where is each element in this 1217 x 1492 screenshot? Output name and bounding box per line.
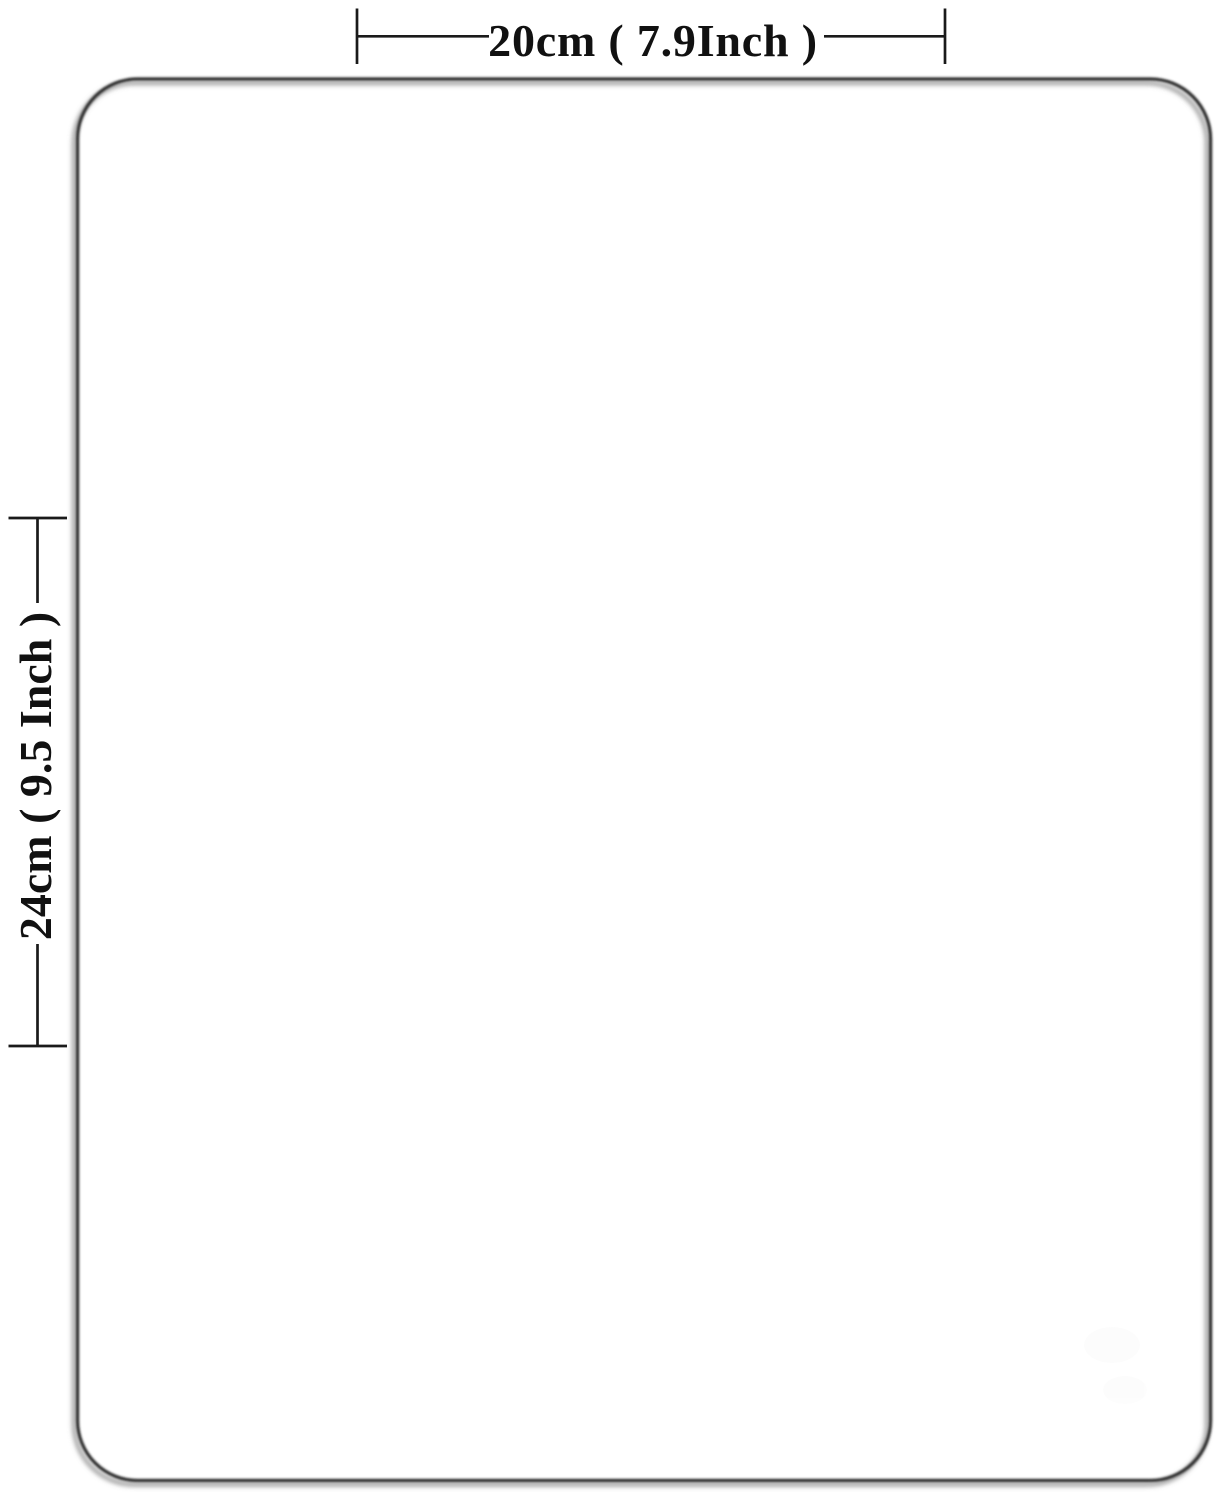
svg-text:24cm ( 9.5 Inch ): 24cm ( 9.5 Inch ) (10, 612, 61, 940)
svg-text:20cm ( 7.9Inch ): 20cm ( 7.9Inch ) (488, 15, 818, 66)
